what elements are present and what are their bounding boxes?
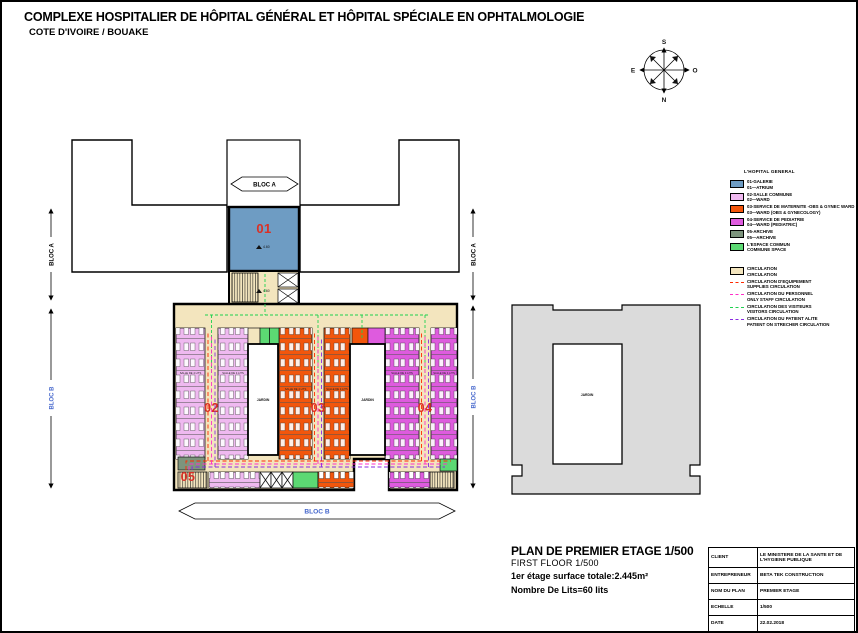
legend-swatch (730, 180, 744, 188)
legend-swatch (730, 243, 744, 251)
legend-item: CIRCULATION D'EQUIPEMENTSUPPLIES CIRCULA… (730, 279, 858, 290)
svg-text:SALLE DE 4 LITS: SALLE DE 4 LITS (326, 387, 348, 391)
legend-item: CIRCULATION DU PERSONNELONLY STAFF CIRCU… (730, 291, 858, 302)
dim-bloc-a-right: BLOC A (472, 242, 478, 265)
room-common-right (440, 459, 457, 471)
tb-label: CLIENT (709, 548, 758, 568)
legend-label-en: 05—ARCHIVE (747, 235, 776, 241)
tb-label: DATE (709, 616, 758, 632)
surface-note: 1er étage surface totale:2.445m² (511, 571, 693, 581)
area-number-05: 05 (181, 470, 196, 484)
dim-bloc-b-left: BLOC B (50, 386, 56, 410)
area-number-01: 01 (256, 221, 271, 236)
legend-item: 02-SALLE COMMUNE02—WARD (730, 192, 858, 203)
title-block-row: ENTREPRENEUR BETA TEK CONSTRUCTION (709, 568, 855, 584)
grey-courtyard (553, 344, 622, 464)
legend-label-en: 04—WARD (PEDIATRIC) (747, 222, 804, 228)
dim-bloc-b-bottom: BLOC B (304, 509, 330, 516)
elevator-shafts (260, 472, 293, 488)
legend-dash-swatch (730, 282, 744, 283)
title-block: CLIENT LE MINISTERE DE LA SANTE ET DE L'… (708, 547, 855, 632)
beds-note: Nombre De Lits=60 lits (511, 585, 693, 595)
legend-label-fr: 03-SERVICE DE MATERNITE -OBS & GYNEC WAR… (747, 204, 854, 210)
legend-label-en: VISITORS CIRCULATION (747, 309, 812, 315)
legend-swatch (730, 267, 744, 275)
legend-item: CIRCULATIONCIRCULATION (730, 266, 858, 277)
compass-s: S (662, 39, 667, 46)
dim-bloc-a-top: BLOC A (253, 183, 276, 189)
dim-bloc-b-right: BLOC B (472, 385, 478, 409)
legend: L'HOPITAL GENERAL 01-GALERIE01—ATRIUM 02… (730, 169, 858, 329)
tb-value: LE MINISTERE DE LA SANTE ET DE L'HYGIENE… (758, 548, 855, 568)
room-archive-05 (178, 457, 205, 470)
title-block-row: CLIENT LE MINISTERE DE LA SANTE ET DE L'… (709, 548, 855, 568)
legend-swatch (730, 230, 744, 238)
tb-label: ENTREPRENEUR (709, 568, 758, 584)
legend-swatch (730, 193, 744, 201)
bloc-a-building: 01 4.60 4.60 (72, 140, 459, 304)
legend-item: 04-SERVICE DE PEDIATRIE04—WARD (PEDIATRI… (730, 217, 858, 228)
legend-item: CIRCULATION DES VISITEURSVISITORS CIRCUL… (730, 304, 858, 315)
legend-header: L'HOPITAL GENERAL (744, 169, 858, 174)
svg-text:SALLE DE 4 LITS: SALLE DE 4 LITS (222, 371, 244, 375)
bottom-row-rooms (178, 472, 454, 488)
legend-label-fr: 01-GALERIE (747, 179, 773, 185)
legend-item: 05-ARCHIVE05—ARCHIVE (730, 229, 858, 240)
dim-bloc-a-left: BLOC A (50, 242, 56, 265)
svg-text:4.60: 4.60 (263, 289, 270, 293)
legend-label-en: 03—WARD (OBS & GYNECOLOGY) (747, 210, 854, 216)
courtyard-label: JARDIN (361, 398, 374, 402)
stairs (430, 472, 454, 488)
bloc-b-building: JARDIN JARDIN (174, 304, 457, 490)
tb-value: PREMIER ETAGE (758, 584, 855, 600)
tb-label: ECHELLE (709, 600, 758, 616)
legend-swatch (730, 205, 744, 213)
title-block-row: ECHELLE 1/500 (709, 600, 855, 616)
compass-e: E (631, 68, 636, 75)
legend-item: L'ESPACE COMMUNCOMMUNE SPACE (730, 242, 858, 253)
drawing-sheet: COMPLEXE HOSPITALIER DE HÔPITAL GÉNÉRAL … (0, 0, 858, 633)
grey-building: JARDIN (512, 305, 700, 494)
legend-dash-swatch (730, 307, 744, 308)
legend-item: CIRCULATION DU PATIENT ALITEPATIENT ON S… (730, 316, 858, 327)
svg-text:SALLE DE 4 LITS: SALLE DE 4 LITS (180, 371, 202, 375)
legend-label-en: PATIENT ON STRECHER CIRCULATION (747, 322, 829, 328)
legend-label-en: 02—WARD (747, 197, 792, 203)
courtyard-label: JARDIN (581, 393, 594, 397)
tb-label: NOM DU PLAN (709, 584, 758, 600)
legend-label-fr: CIRCULATION DU PERSONNEL (747, 291, 813, 297)
tb-value: 22.02.2018 (758, 616, 855, 632)
plan-notes: PLAN DE PREMIER ETAGE 1/500 FIRST FLOOR … (511, 544, 693, 595)
legend-swatch (730, 218, 744, 226)
legend-item: 01-GALERIE01—ATRIUM (730, 179, 858, 190)
legend-label-en: CIRCULATION (747, 272, 777, 278)
svg-text:SALLE DE 4 LITS: SALLE DE 4 LITS (391, 371, 413, 375)
title-block-row: DATE 22.02.2018 (709, 616, 855, 632)
stairs (232, 273, 258, 302)
courtyard-label: JARDIN (257, 398, 270, 402)
legend-dash-swatch (730, 319, 744, 320)
svg-text:4.60: 4.60 (263, 245, 270, 249)
title-block-row: NOM DU PLAN PREMIER ETAGE (709, 584, 855, 600)
legend-label-en: COMMUNE SPACE (747, 247, 790, 253)
legend-label-en: 01—ATRIUM (747, 185, 773, 191)
tb-value: 1/500 (758, 600, 855, 616)
compass-n: N (662, 97, 667, 104)
compass-o: O (692, 68, 697, 75)
room-atrium-01 (229, 207, 299, 271)
svg-text:SALLE DE 4 LITS: SALLE DE 4 LITS (433, 371, 455, 375)
tb-value: BETA TEK CONSTRUCTION (758, 568, 855, 584)
legend-dash-swatch (730, 294, 744, 295)
legend-item: 03-SERVICE DE MATERNITE -OBS & GYNEC WAR… (730, 204, 858, 215)
compass-rose: S N E O (631, 39, 698, 104)
plan-title-en: FIRST FLOOR 1/500 (511, 558, 693, 568)
plan-title: PLAN DE PREMIER ETAGE 1/500 (511, 544, 693, 558)
svg-text:SALLE DE 4 LITS: SALLE DE 4 LITS (285, 387, 307, 391)
legend-label-fr: CIRCULATION (747, 266, 777, 272)
legend-label-en: ONLY STAFF CIRCULATION (747, 297, 813, 303)
legend-label-fr: CIRCULATION DU PATIENT ALITE (747, 316, 829, 322)
legend-label-fr: 05-ARCHIVE (747, 229, 776, 235)
legend-label-en: SUPPLIES CIRCULATION (747, 284, 811, 290)
